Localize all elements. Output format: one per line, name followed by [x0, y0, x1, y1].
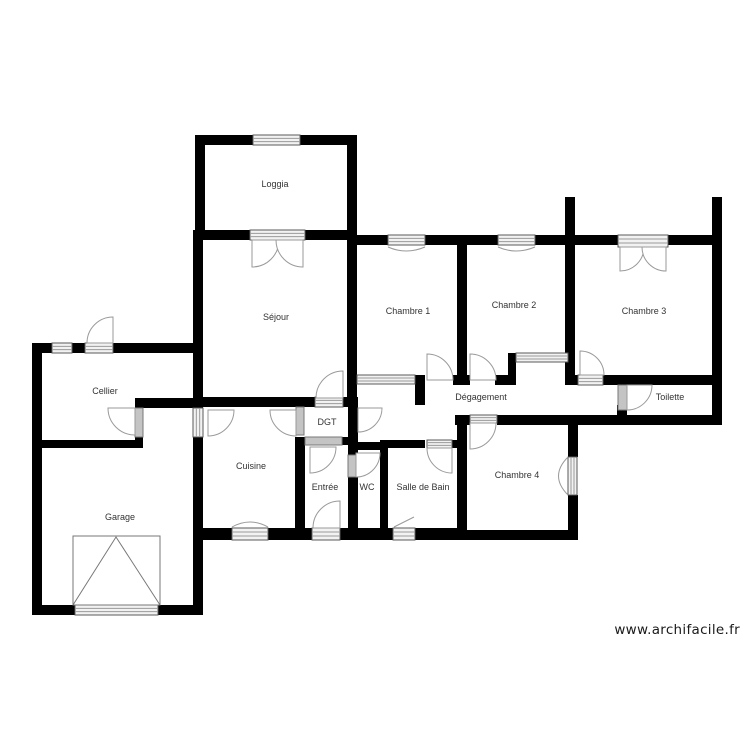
room-label-cellier: Cellier — [92, 386, 118, 396]
wall — [193, 540, 203, 615]
room-label-salle-de-bain: Salle de Bain — [396, 482, 449, 492]
room-label-entree: Entrée — [312, 482, 339, 492]
wall — [452, 440, 467, 448]
wall — [457, 530, 577, 540]
door-arc — [427, 354, 453, 380]
wall — [113, 343, 193, 353]
wall — [497, 415, 712, 425]
window — [393, 528, 415, 540]
window — [357, 375, 415, 384]
room-label-chambre-4: Chambre 4 — [495, 470, 540, 480]
wall — [568, 375, 578, 385]
wall — [32, 343, 42, 615]
window-swing-curve — [394, 517, 414, 527]
door-arc — [208, 410, 234, 436]
room-label-garage: Garage — [105, 512, 135, 522]
room-label-wc: WC — [360, 482, 375, 492]
wall — [268, 528, 312, 540]
window — [52, 343, 72, 353]
wall — [72, 343, 85, 353]
window-swing-curve — [559, 457, 569, 495]
window — [427, 440, 452, 448]
window — [193, 408, 203, 437]
door-arc — [642, 247, 666, 271]
door-arc — [356, 453, 380, 477]
room-label-chambre-1: Chambre 1 — [386, 306, 431, 316]
window — [568, 457, 577, 495]
wall — [193, 230, 203, 540]
window — [578, 375, 603, 385]
room-label-chambre-3: Chambre 3 — [622, 306, 667, 316]
wall — [415, 375, 425, 405]
room-label-chambre-2: Chambre 2 — [492, 300, 537, 310]
wall — [295, 437, 305, 540]
wall — [568, 415, 578, 457]
door-arc — [310, 447, 336, 473]
window-swing-curve — [388, 247, 425, 251]
wall — [508, 353, 516, 385]
wall — [603, 375, 712, 385]
wall — [453, 375, 470, 385]
wall — [457, 415, 467, 540]
room-label-degagement: Dégagement — [455, 392, 507, 402]
door-leaf-bar — [305, 437, 342, 445]
door-arc — [580, 351, 604, 375]
door-leaf-bar — [618, 385, 627, 410]
window — [253, 135, 300, 145]
room-label-loggia: Loggia — [261, 179, 288, 189]
window — [312, 528, 340, 540]
wall — [340, 528, 393, 540]
wall — [565, 197, 575, 242]
wall — [193, 397, 315, 407]
window — [232, 528, 268, 540]
window-swing-curve — [498, 247, 535, 251]
door-arc — [252, 240, 279, 267]
window — [388, 235, 425, 245]
door-arc — [108, 408, 135, 435]
garage-door — [73, 536, 160, 605]
wall — [380, 442, 388, 540]
wall — [193, 528, 232, 540]
window — [470, 415, 497, 423]
wall — [535, 235, 618, 245]
room-label-cuisine: Cuisine — [236, 461, 266, 471]
door-arc — [627, 385, 652, 410]
door-arc — [87, 317, 113, 343]
room-label-toilette: Toilette — [656, 392, 685, 402]
window-swing-curve — [232, 522, 268, 527]
wall — [32, 440, 143, 448]
door-arc — [470, 354, 496, 380]
room-label-dgt: DGT — [318, 417, 338, 427]
wall — [712, 197, 722, 425]
window — [85, 343, 113, 353]
door-leaf-bar — [135, 408, 143, 437]
door-arc — [427, 448, 452, 473]
door-arc — [313, 501, 340, 528]
wall — [158, 605, 203, 615]
door-leaf-bar — [296, 407, 304, 435]
door-arc — [276, 240, 303, 267]
wall — [457, 240, 467, 385]
wall — [195, 230, 250, 240]
wall — [32, 605, 75, 615]
wall — [415, 528, 467, 540]
wall — [380, 440, 425, 448]
wall — [135, 398, 203, 408]
window — [618, 235, 668, 247]
door-arc — [620, 247, 644, 271]
window — [75, 605, 158, 615]
window — [498, 235, 535, 245]
floor-plan: LoggiaSéjourChambre 1Chambre 2Chambre 3C… — [0, 0, 750, 750]
door-leaf-bar — [348, 455, 356, 477]
wall — [347, 230, 357, 405]
watermark-text: www.archifacile.fr — [614, 622, 740, 638]
wall — [347, 135, 357, 240]
door-arc — [316, 371, 343, 398]
door-arc — [270, 410, 296, 436]
room-label-sejour: Séjour — [263, 312, 289, 322]
door-arc — [470, 423, 496, 449]
window — [250, 230, 305, 240]
garage-door-lines — [73, 537, 160, 605]
wall — [195, 135, 205, 240]
window — [516, 353, 568, 362]
wall — [565, 240, 575, 385]
door-arc — [358, 408, 382, 432]
